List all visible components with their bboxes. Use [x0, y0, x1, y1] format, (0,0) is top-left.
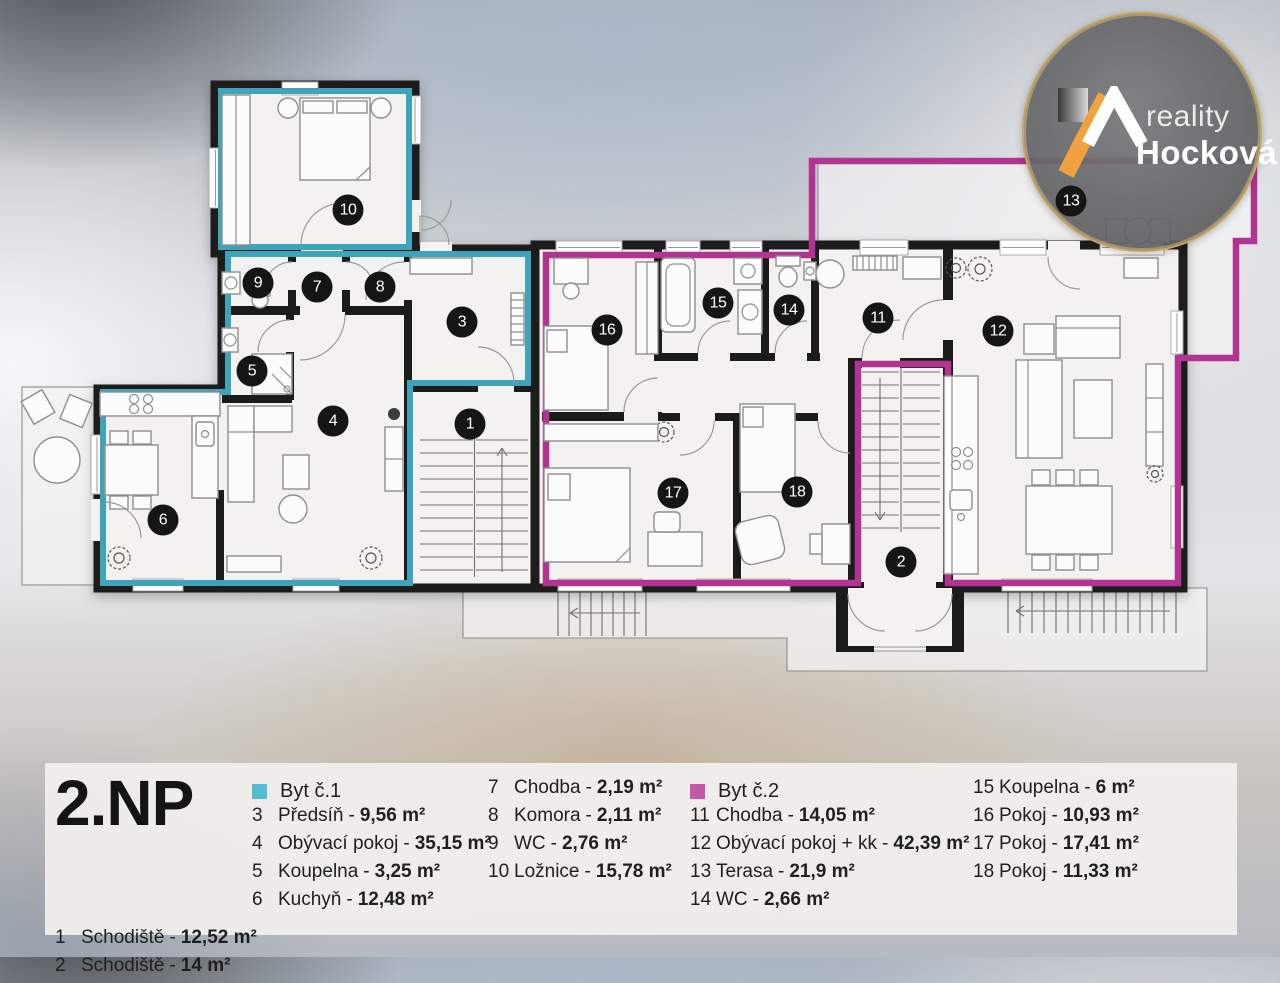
legend-separator: -: [348, 805, 354, 827]
legend-item: 15Koupelna-6 m²: [973, 777, 1139, 805]
legend-separator: -: [1052, 805, 1058, 827]
legend-separator: -: [346, 889, 352, 911]
legend-separator: -: [403, 833, 409, 855]
legend-item: 10Ložnice-15,78 m²: [488, 861, 672, 889]
legend-separator: -: [788, 805, 794, 827]
legend-separator: -: [586, 777, 592, 799]
legend-byt1-cont-list: 7Chodba-2,19 m² 8Komora-2,11 m² 9WC-2,76…: [488, 777, 672, 889]
legend-item: 6Kuchyň-12,48 m²: [252, 889, 491, 917]
legend-separator: -: [753, 889, 759, 911]
legend-item: 12Obývací pokoj + kk-42,39 m²: [690, 833, 969, 861]
floor-title: 2.NP: [55, 771, 257, 835]
legend-item: 9WC-2,76 m²: [488, 833, 672, 861]
porch: [836, 588, 964, 652]
legend-item: 16Pokoj-10,93 m²: [973, 805, 1139, 833]
logo-brand-top: reality: [1146, 100, 1230, 134]
legend-separator: -: [169, 927, 175, 949]
legend-panel: 2.NP 1Schodiště-12,52 m² 2Schodiště-14 m…: [45, 763, 1237, 935]
byt1-header: Byt č.1: [252, 777, 491, 805]
legend-separator: -: [1052, 833, 1058, 855]
legend-separator: -: [882, 833, 888, 855]
legend-item: 5Koupelna-3,25 m²: [252, 861, 491, 889]
legend-separator: -: [586, 805, 592, 827]
legend-item: 7Chodba-2,19 m²: [488, 777, 672, 805]
legend-common-list: 1Schodiště-12,52 m² 2Schodiště-14 m²: [55, 927, 257, 983]
legend-item: 17Pokoj-17,41 m²: [973, 833, 1139, 861]
legend-separator: -: [1052, 861, 1058, 883]
byt2-header: Byt č.2: [690, 777, 969, 805]
block-byt1: [98, 249, 535, 588]
legend-item: 2Schodiště-14 m²: [55, 955, 257, 983]
legend-separator: -: [778, 861, 784, 883]
legend-separator: -: [1084, 777, 1090, 799]
byt2-color-swatch: [690, 784, 705, 799]
legend-item: 11Chodba-14,05 m²: [690, 805, 969, 833]
legend-item: 1Schodiště-12,52 m²: [55, 927, 257, 955]
entrance-platform: [463, 588, 1207, 671]
legend-item: 13Terasa-21,9 m²: [690, 861, 969, 889]
agency-logo: reality Hocková: [1022, 12, 1262, 252]
legend-item: 18Pokoj-11,33 m²: [973, 861, 1139, 889]
legend-separator: -: [585, 861, 591, 883]
legend-item: 14WC-2,66 m²: [690, 889, 969, 917]
legend-item: 8Komora-2,11 m²: [488, 805, 672, 833]
logo-brand-name: Hocková: [1136, 134, 1277, 172]
byt1-color-swatch: [252, 784, 267, 799]
legend-byt2-list: 11Chodba-14,05 m² 12Obývací pokoj + kk-4…: [690, 805, 969, 917]
legend-item: 3Předsíň-9,56 m²: [252, 805, 491, 833]
legend-separator: -: [169, 955, 175, 977]
legend-byt2-cont-list: 15Koupelna-6 m² 16Pokoj-10,93 m² 17Pokoj…: [973, 777, 1139, 889]
legend-separator: -: [363, 861, 369, 883]
legend-separator: -: [551, 833, 557, 855]
legend-item: 4Obývací pokoj-35,15 m²: [252, 833, 491, 861]
legend-byt1-list: 3Předsíň-9,56 m² 4Obývací pokoj-35,15 m²…: [252, 805, 491, 917]
